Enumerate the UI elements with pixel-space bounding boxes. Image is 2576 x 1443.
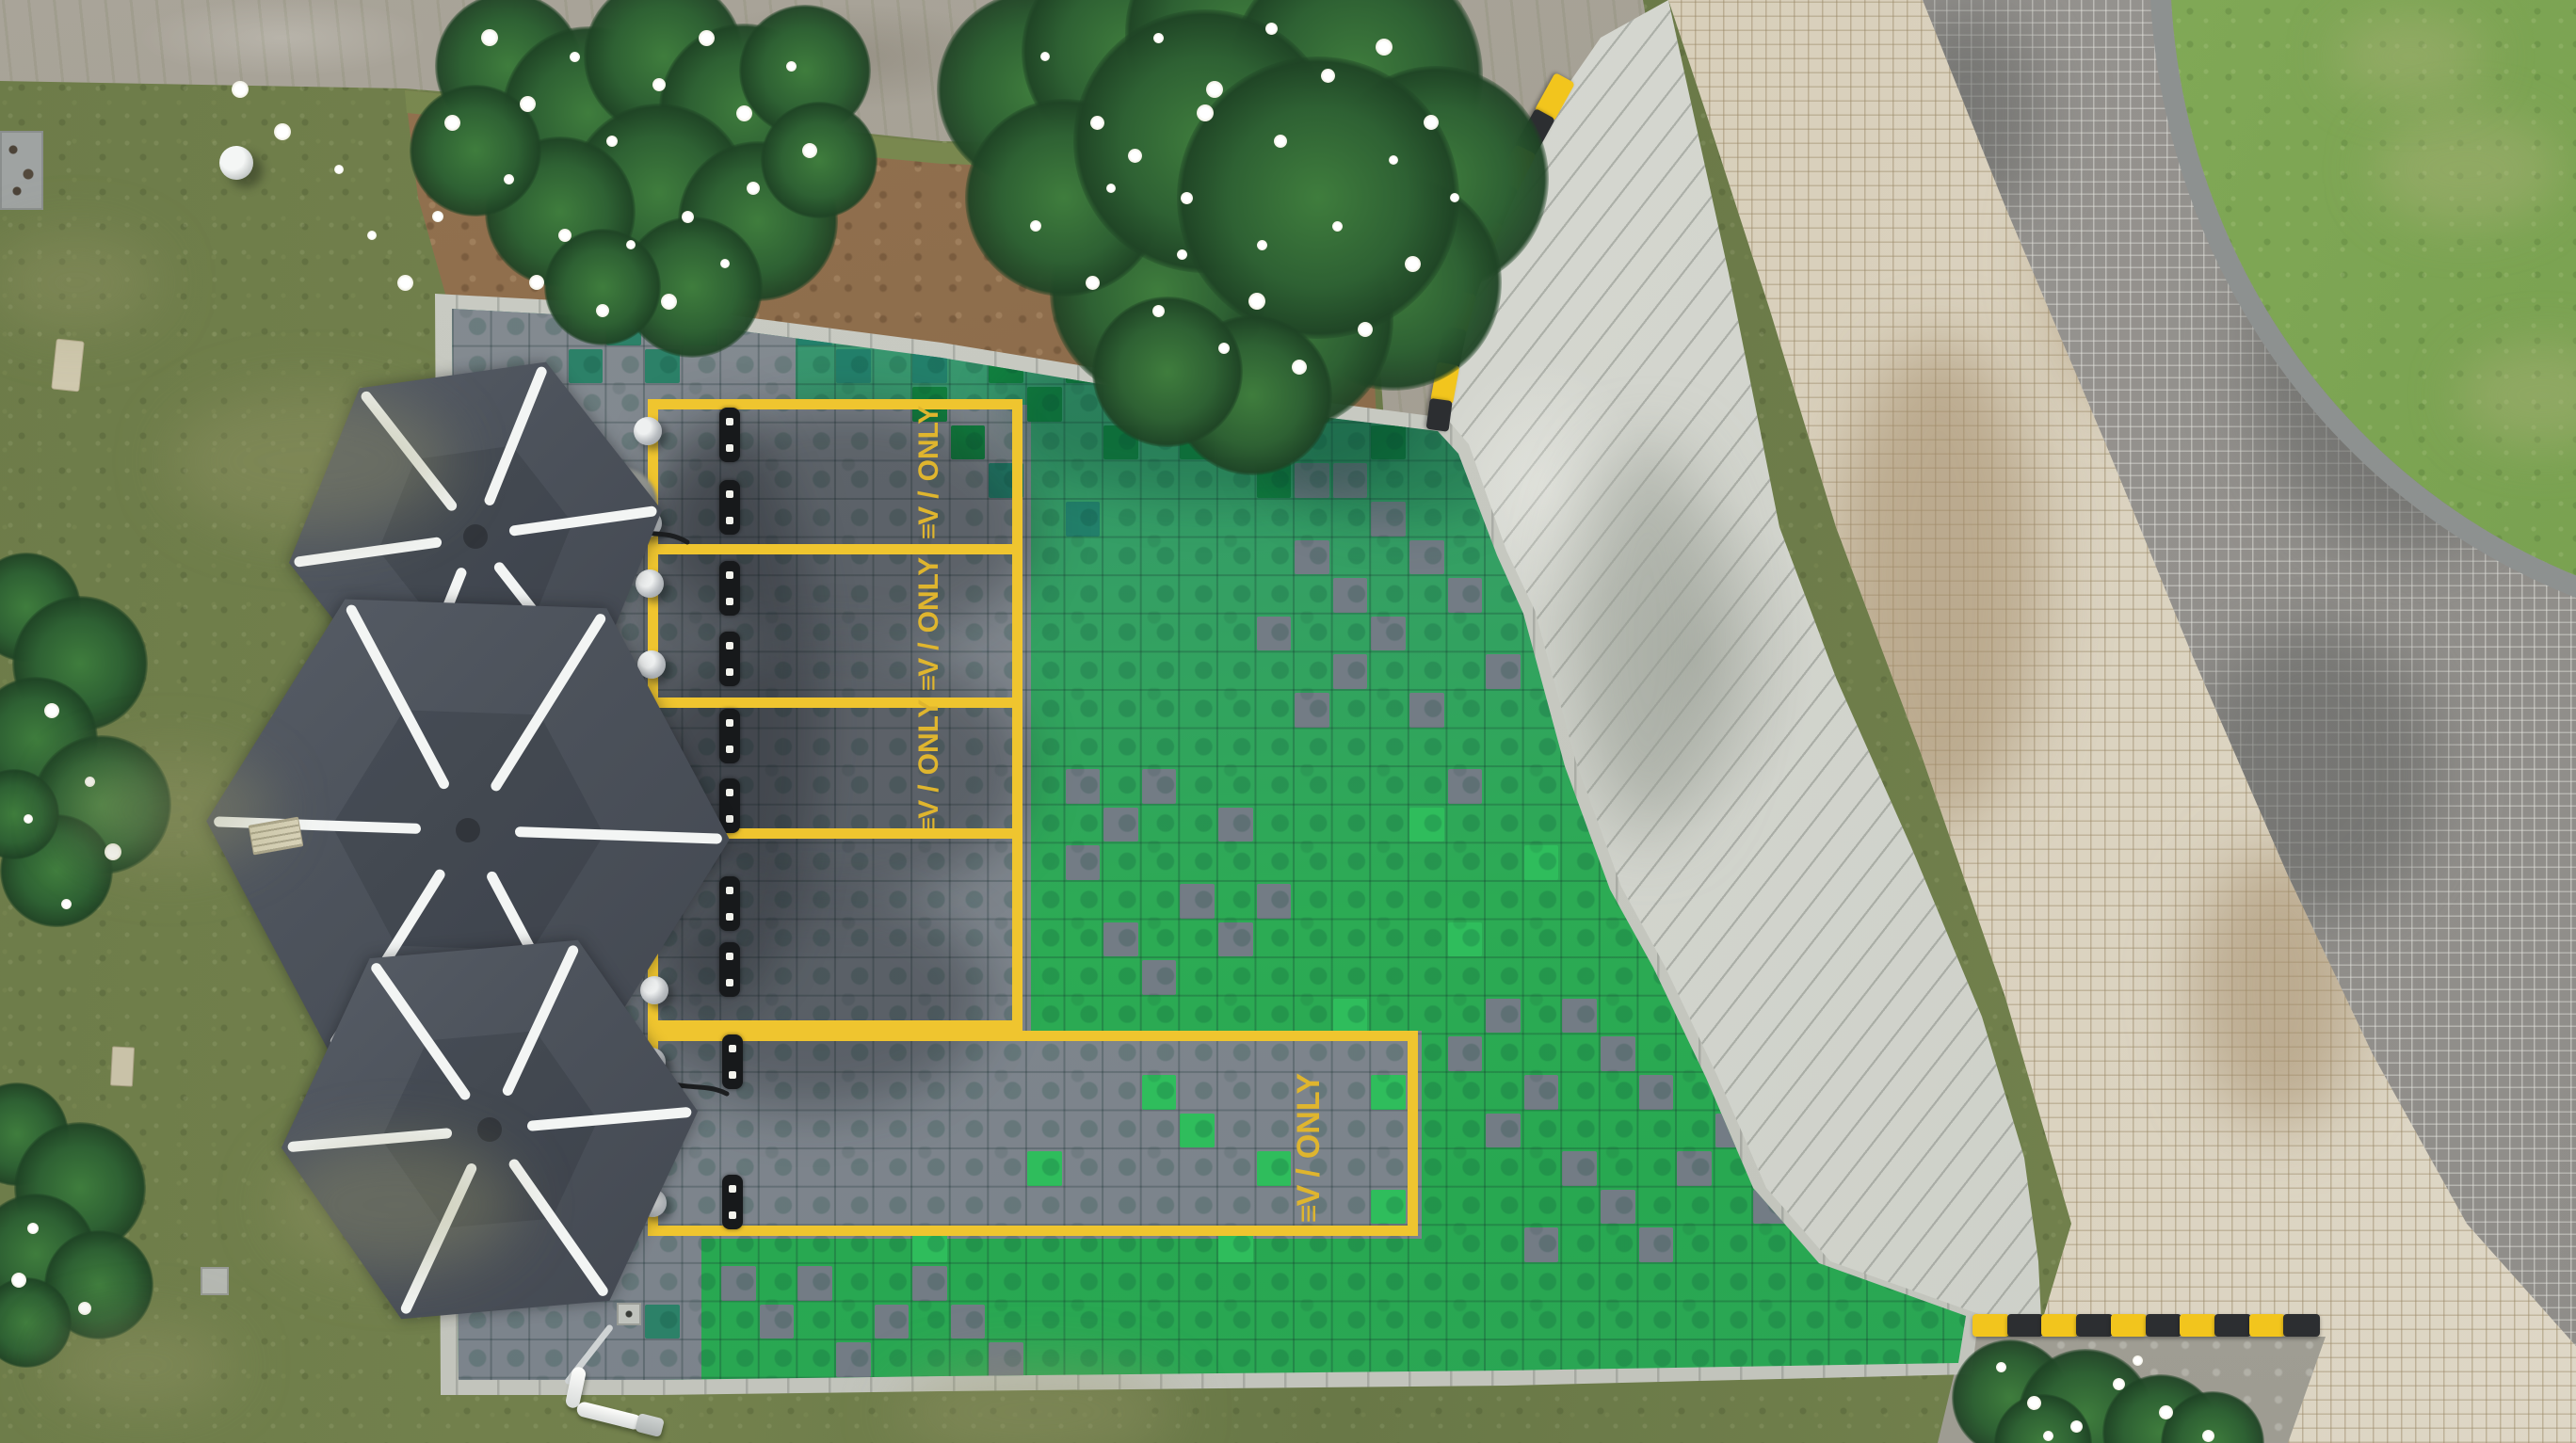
drain-plate (0, 131, 43, 210)
dry-grass-patch (169, 391, 452, 532)
bollard (219, 146, 253, 180)
plate-sm (617, 1303, 641, 1325)
paver (51, 339, 84, 393)
pipe (575, 1401, 643, 1431)
dry-grass-patch (273, 1139, 518, 1271)
dry-grass-patch (66, 753, 273, 866)
plate (201, 1267, 229, 1295)
dry-lawn-patch (2373, 113, 2561, 226)
dry-grass-patch (47, 1323, 235, 1407)
aerial-scene: ≡V/ONLY≡V/ONLY≡V/ONLY≡V/ONLY (0, 0, 2576, 1443)
marker (110, 1046, 135, 1086)
dry-lawn-patch (2335, 14, 2486, 99)
pipe-cap (635, 1413, 665, 1437)
